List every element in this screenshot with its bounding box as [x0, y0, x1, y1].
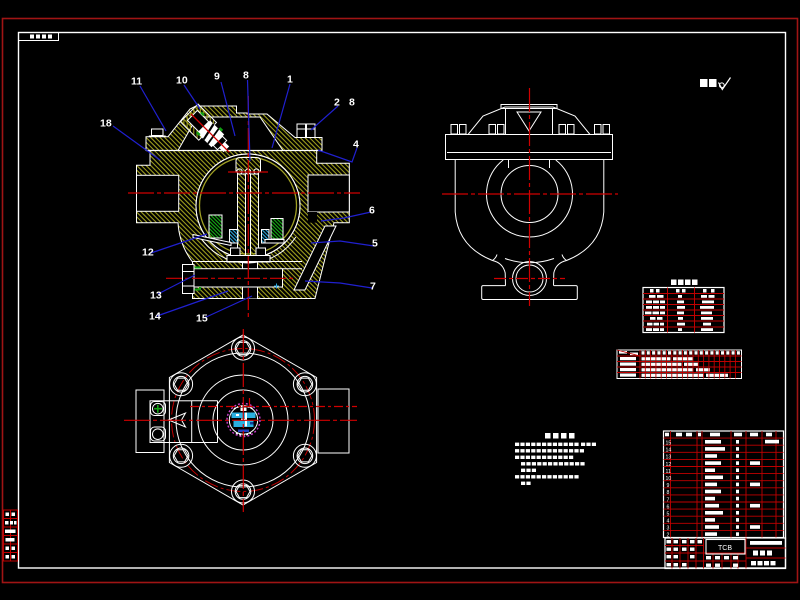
svg-text:3: 3: [667, 526, 670, 532]
svg-text:10: 10: [666, 476, 672, 482]
svg-text:4: 4: [353, 139, 359, 151]
svg-text:2: 2: [334, 97, 340, 109]
svg-text:6: 6: [369, 205, 375, 217]
svg-text:4: 4: [667, 519, 670, 525]
svg-text:8: 8: [243, 70, 249, 82]
svg-text:5: 5: [372, 238, 378, 250]
svg-text:18: 18: [100, 118, 112, 130]
svg-text:TCB: TCB: [718, 545, 732, 552]
svg-text:1: 1: [287, 74, 293, 86]
svg-text:7: 7: [667, 497, 670, 503]
svg-text:13: 13: [150, 290, 162, 302]
svg-text:11: 11: [131, 76, 142, 88]
svg-text:9: 9: [214, 71, 220, 83]
svg-text:15: 15: [666, 441, 672, 447]
svg-text:7: 7: [370, 281, 376, 293]
svg-text:12: 12: [142, 247, 154, 259]
svg-text:12: 12: [666, 462, 672, 468]
svg-text:14: 14: [666, 448, 672, 454]
svg-text:5: 5: [667, 512, 670, 518]
svg-text:6: 6: [667, 504, 670, 510]
svg-text:14: 14: [149, 311, 161, 323]
svg-text:15: 15: [196, 313, 208, 325]
svg-text:8: 8: [667, 490, 670, 496]
svg-text:10: 10: [176, 75, 188, 87]
svg-text:9: 9: [667, 483, 670, 489]
svg-text:8: 8: [349, 97, 355, 109]
svg-text:11: 11: [666, 469, 671, 475]
svg-text:13: 13: [666, 455, 672, 461]
